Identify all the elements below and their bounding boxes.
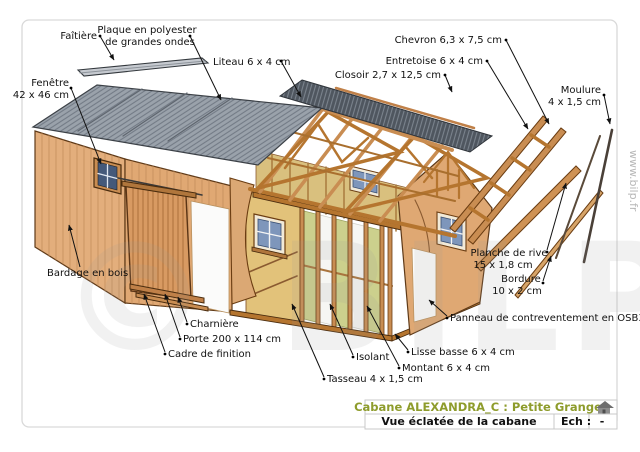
label-fenetre-line1: Fenêtre [31, 77, 69, 89]
label-bordure-line1: Bordure [501, 274, 541, 285]
title-block: Cabane ALEXANDRA_C : Petite Grange Vue é… [354, 400, 617, 429]
bilp-logo-watermark: © BILP [60, 212, 640, 386]
label-lisse-basse: Lisse basse 6 x 4 cm [411, 347, 515, 358]
website-watermark: www.bilp.fr [627, 150, 640, 212]
label-moulure-line2: 4 x 1,5 cm [548, 97, 601, 108]
label-plaque-line1: Plaque en polyester [97, 25, 197, 36]
label-tasseau: Tasseau 4 x 1,5 cm [326, 374, 423, 385]
scale-value: - [600, 415, 605, 428]
label-bardage: Bardage en bois [47, 268, 128, 279]
exploded-view-drawing: © BILP www.bilp.fr Faîtière Plaque en p [0, 0, 640, 452]
plan-subtitle: Vue éclatée de la cabane [381, 415, 536, 428]
label-panneau-osb: Panneau de contreventement en OSB3 [450, 313, 640, 324]
label-fenetre-line2: 42 x 46 cm [13, 90, 69, 101]
faitiere-piece [78, 58, 208, 76]
plan-title: Cabane ALEXANDRA_C : Petite Grange [354, 400, 602, 415]
label-plaque-line2: de grandes ondes [105, 37, 195, 48]
left-window [94, 158, 121, 194]
label-bordure-line2: 10 x 2 cm [492, 286, 542, 297]
plan-page: © BILP www.bilp.fr Faîtière Plaque en p [0, 0, 640, 452]
label-planche-rive-line2: 15 x 1,8 cm [473, 260, 532, 271]
label-entretoise: Entretoise 6 x 4 cm [386, 56, 483, 67]
label-closoir: Closoir 2,7 x 12,5 cm [335, 70, 441, 81]
label-liteau: Liteau 6 x 4 cm [213, 57, 291, 68]
label-montant: Montant 6 x 4 cm [402, 363, 490, 374]
label-cadre-finition: Cadre de finition [168, 349, 251, 360]
label-chevron: Chevron 6,3 x 7,5 cm [395, 35, 502, 46]
scale-label: Ech : [561, 415, 591, 428]
label-isolant: Isolant [356, 352, 390, 363]
label-faitiere: Faîtière [60, 30, 97, 42]
label-charniere: Charnière [190, 318, 239, 330]
label-planche-rive-line1: Planche de rive [470, 248, 547, 259]
label-moulure-line1: Moulure [561, 85, 601, 96]
label-porte: Porte 200 x 114 cm [183, 334, 281, 345]
